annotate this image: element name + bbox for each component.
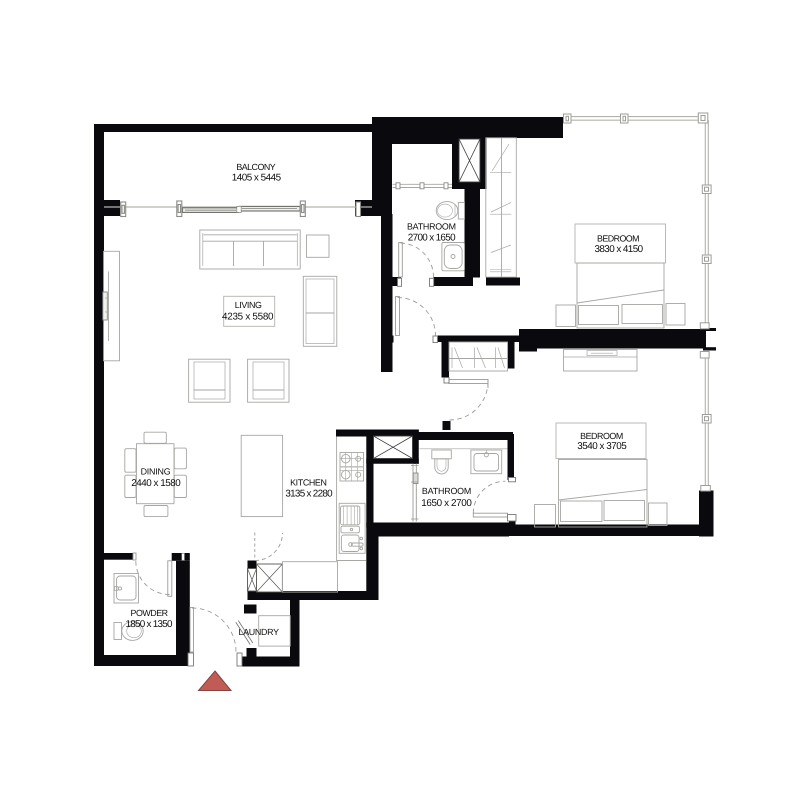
svg-text:DINING: DINING [141,467,171,477]
svg-text:LAUNDRY: LAUNDRY [239,627,280,637]
svg-text:2700 x 1650: 2700 x 1650 [408,232,456,243]
svg-text:3830 x 4150: 3830 x 4150 [594,244,643,255]
svg-text:BEDROOM: BEDROOM [597,233,640,243]
svg-text:1650 x 2700: 1650 x 2700 [421,498,472,509]
svg-text:1405 x 5445: 1405 x 5445 [232,173,282,184]
svg-text:BALCONY: BALCONY [236,162,275,172]
svg-text:3135 x 2280: 3135 x 2280 [285,488,333,499]
svg-text:POWDER: POWDER [131,608,169,618]
svg-text:2440 x 1580: 2440 x 1580 [131,478,181,489]
svg-text:BATHROOM: BATHROOM [407,222,456,232]
svg-text:BEDROOM: BEDROOM [580,431,623,441]
svg-text:4235 x 5580: 4235 x 5580 [222,311,274,322]
svg-text:BATHROOM: BATHROOM [422,486,471,496]
svg-text:1850 x 1350: 1850 x 1350 [126,619,174,630]
svg-text:LIVING: LIVING [235,300,262,310]
svg-text:3540 x 3705: 3540 x 3705 [577,441,627,452]
svg-text:KITCHEN: KITCHEN [290,478,327,488]
